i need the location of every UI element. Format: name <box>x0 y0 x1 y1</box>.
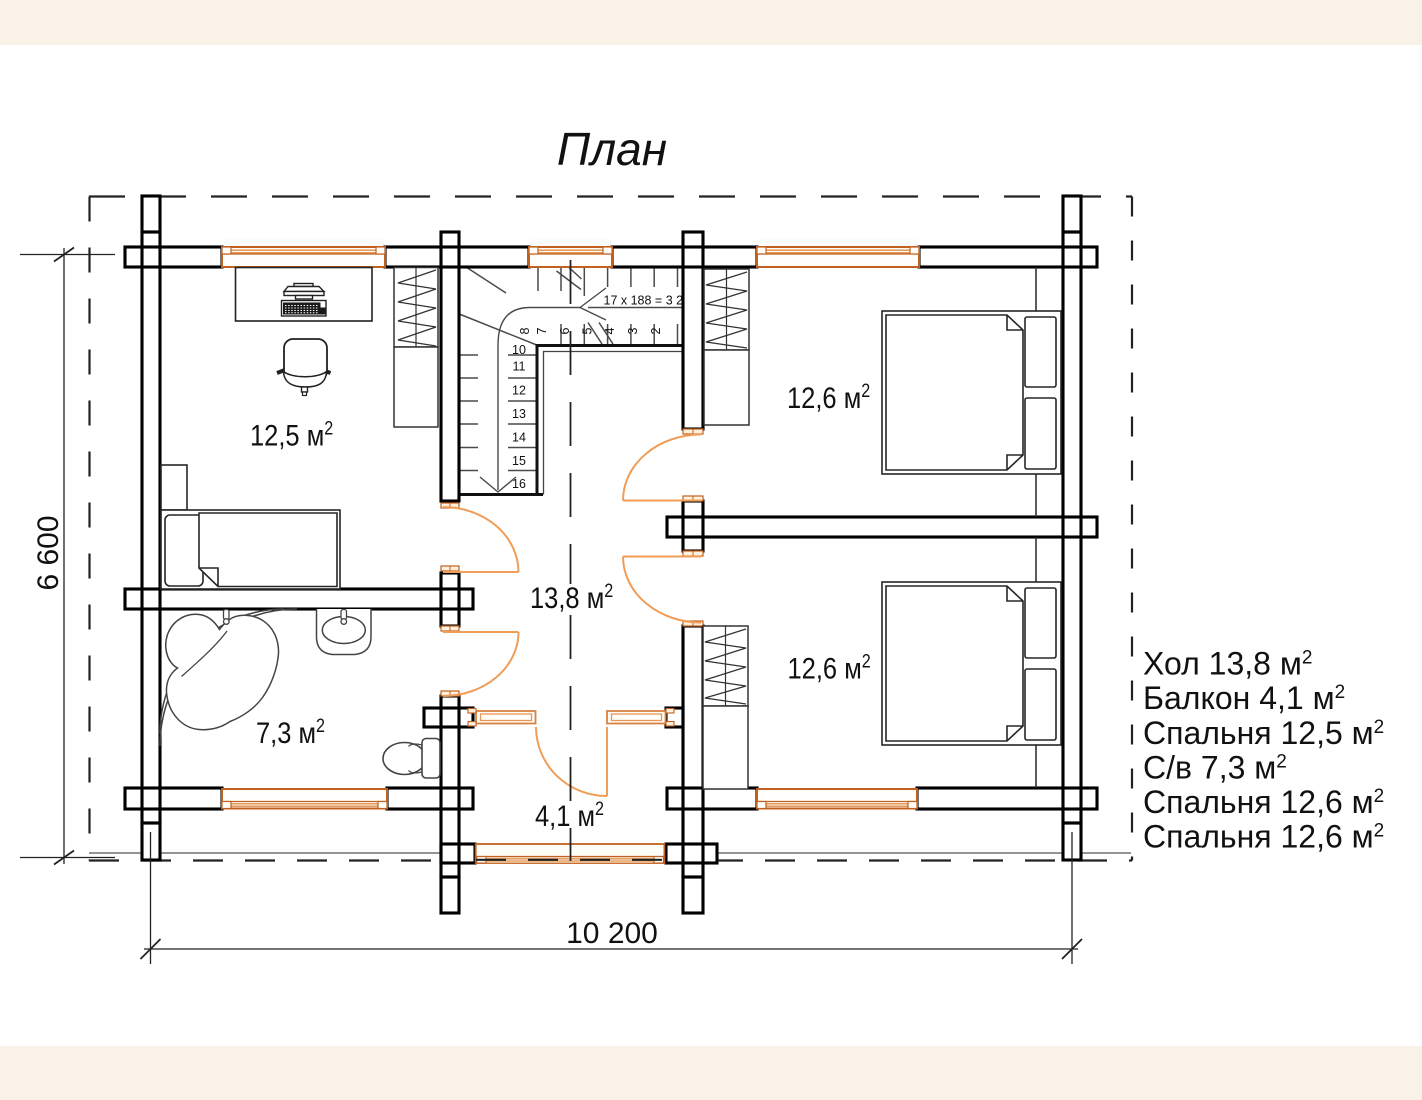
svg-text:8: 8 <box>518 327 532 334</box>
svg-text:10: 10 <box>512 343 526 357</box>
svg-text:12,5 м2: 12,5 м2 <box>250 417 333 452</box>
svg-text:12,6 м2: 12,6 м2 <box>788 650 871 685</box>
svg-text:16: 16 <box>512 477 526 491</box>
svg-text:Спальня 12,6 м2: Спальня 12,6 м2 <box>1143 784 1384 820</box>
svg-text:14: 14 <box>512 431 526 445</box>
svg-text:7: 7 <box>535 327 549 334</box>
svg-text:Спальня 12,6 м2: Спальня 12,6 м2 <box>1143 818 1384 854</box>
svg-text:13,8 м2: 13,8 м2 <box>530 580 613 615</box>
svg-text:12: 12 <box>512 384 526 398</box>
svg-text:4: 4 <box>603 327 617 334</box>
svg-text:12,6 м2: 12,6 м2 <box>787 380 870 415</box>
svg-text:7,3 м2: 7,3 м2 <box>256 715 325 750</box>
svg-text:Балкон 4,1 м2: Балкон 4,1 м2 <box>1143 680 1345 716</box>
svg-text:4,1 м2: 4,1 м2 <box>535 798 604 833</box>
svg-text:План: План <box>557 123 667 175</box>
svg-text:17 x 188 = 3 26: 17 x 188 = 3 26 <box>604 294 691 308</box>
svg-text:Спальня 12,5 м2: Спальня 12,5 м2 <box>1143 715 1384 751</box>
svg-text:10 200: 10 200 <box>566 917 658 950</box>
svg-text:5: 5 <box>581 327 595 334</box>
svg-text:Хол 13,8 м2: Хол 13,8 м2 <box>1143 646 1312 682</box>
svg-text:С/в 7,3 м2: С/в 7,3 м2 <box>1143 749 1287 785</box>
svg-text:11: 11 <box>513 360 526 374</box>
svg-text:6 600: 6 600 <box>32 515 65 590</box>
svg-text:2: 2 <box>649 327 663 334</box>
svg-text:13: 13 <box>512 407 526 421</box>
svg-text:3: 3 <box>626 327 640 334</box>
svg-text:15: 15 <box>512 454 526 468</box>
